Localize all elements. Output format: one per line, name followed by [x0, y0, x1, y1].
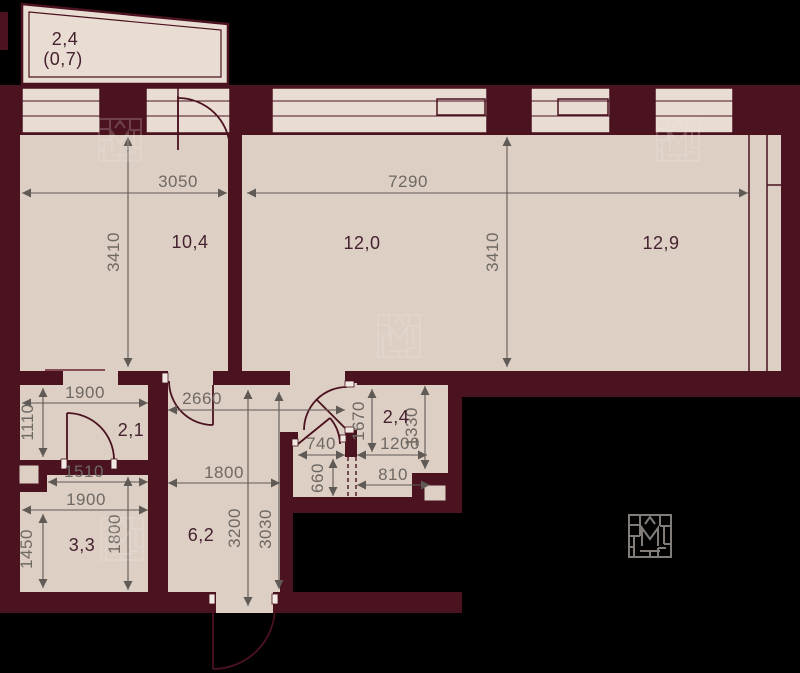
jamb: [272, 594, 278, 604]
dim-1510: 1510: [64, 462, 104, 481]
dim-1800-corridor: 1800: [204, 463, 244, 482]
dim-1670: 1670: [349, 401, 368, 441]
dim-3200: 3200: [225, 508, 244, 548]
opening-hall-living: [290, 371, 345, 385]
dim-3410-right: 3410: [483, 232, 502, 272]
dim-3410-left: 3410: [104, 232, 123, 272]
dim-3050: 3050: [158, 172, 198, 191]
room-12-0-12-9-area: [242, 135, 781, 371]
dim-660: 660: [308, 463, 327, 493]
dim-7290: 7290: [388, 172, 428, 191]
jamb: [209, 594, 215, 604]
room-label-12-0: 12,0: [343, 233, 380, 253]
void-bottom-right: [293, 513, 462, 592]
opening-hall-door: [168, 371, 213, 385]
floor-plan-page: 3050 7290 3410 3410 1900 1110 1510 1900 …: [0, 0, 800, 673]
dim-3030: 3030: [256, 509, 275, 549]
jamb: [111, 459, 117, 469]
window-2-balcony-door: [146, 88, 230, 133]
opening-entrance-door: [216, 592, 273, 613]
room-label-3-3: 3,3: [69, 535, 96, 555]
wall-2-1-bottom-right: [112, 460, 148, 475]
dim-1110: 1110: [18, 403, 37, 440]
jamb: [340, 435, 346, 442]
dim-1900-hall: 1900: [65, 383, 105, 402]
dim-1450: 1450: [17, 529, 36, 569]
jamb: [162, 373, 168, 383]
jamb: [292, 439, 298, 446]
room-label-10-4: 10,4: [171, 232, 208, 252]
floor-plan: 3050 7290 3410 3410 1900 1110 1510 1900 …: [0, 0, 800, 673]
dim-810: 810: [378, 465, 408, 484]
shaft-right: [424, 485, 446, 501]
window-3: [272, 88, 487, 133]
jamb: [345, 381, 354, 387]
room-10-4-area: [20, 135, 228, 371]
room-label-2-4: 2,4: [383, 407, 410, 427]
room-label-6-2: 6,2: [188, 525, 215, 545]
dim-1200: 1200: [380, 434, 420, 453]
dim-2660: 2660: [182, 389, 222, 408]
window-4: [531, 88, 610, 133]
balcony-area-label: 2,4: [52, 29, 79, 49]
wall-left-upper: [0, 85, 22, 375]
dim-1900-bath: 1900: [66, 490, 106, 509]
wall-bottom-upper-block: [448, 371, 800, 397]
room-label-2-1: 2,1: [118, 420, 145, 440]
window-5: [655, 88, 733, 133]
dim-740: 740: [306, 434, 336, 453]
shaft-left: [19, 465, 39, 484]
wall-sliver: [0, 12, 8, 50]
wall-divider-rooms: [228, 135, 242, 375]
wall-right-outer: [781, 135, 800, 397]
window-1: [22, 88, 100, 133]
room-label-12-9: 12,9: [642, 233, 679, 253]
balcony-area-reduced-label: (0,7): [43, 49, 83, 69]
